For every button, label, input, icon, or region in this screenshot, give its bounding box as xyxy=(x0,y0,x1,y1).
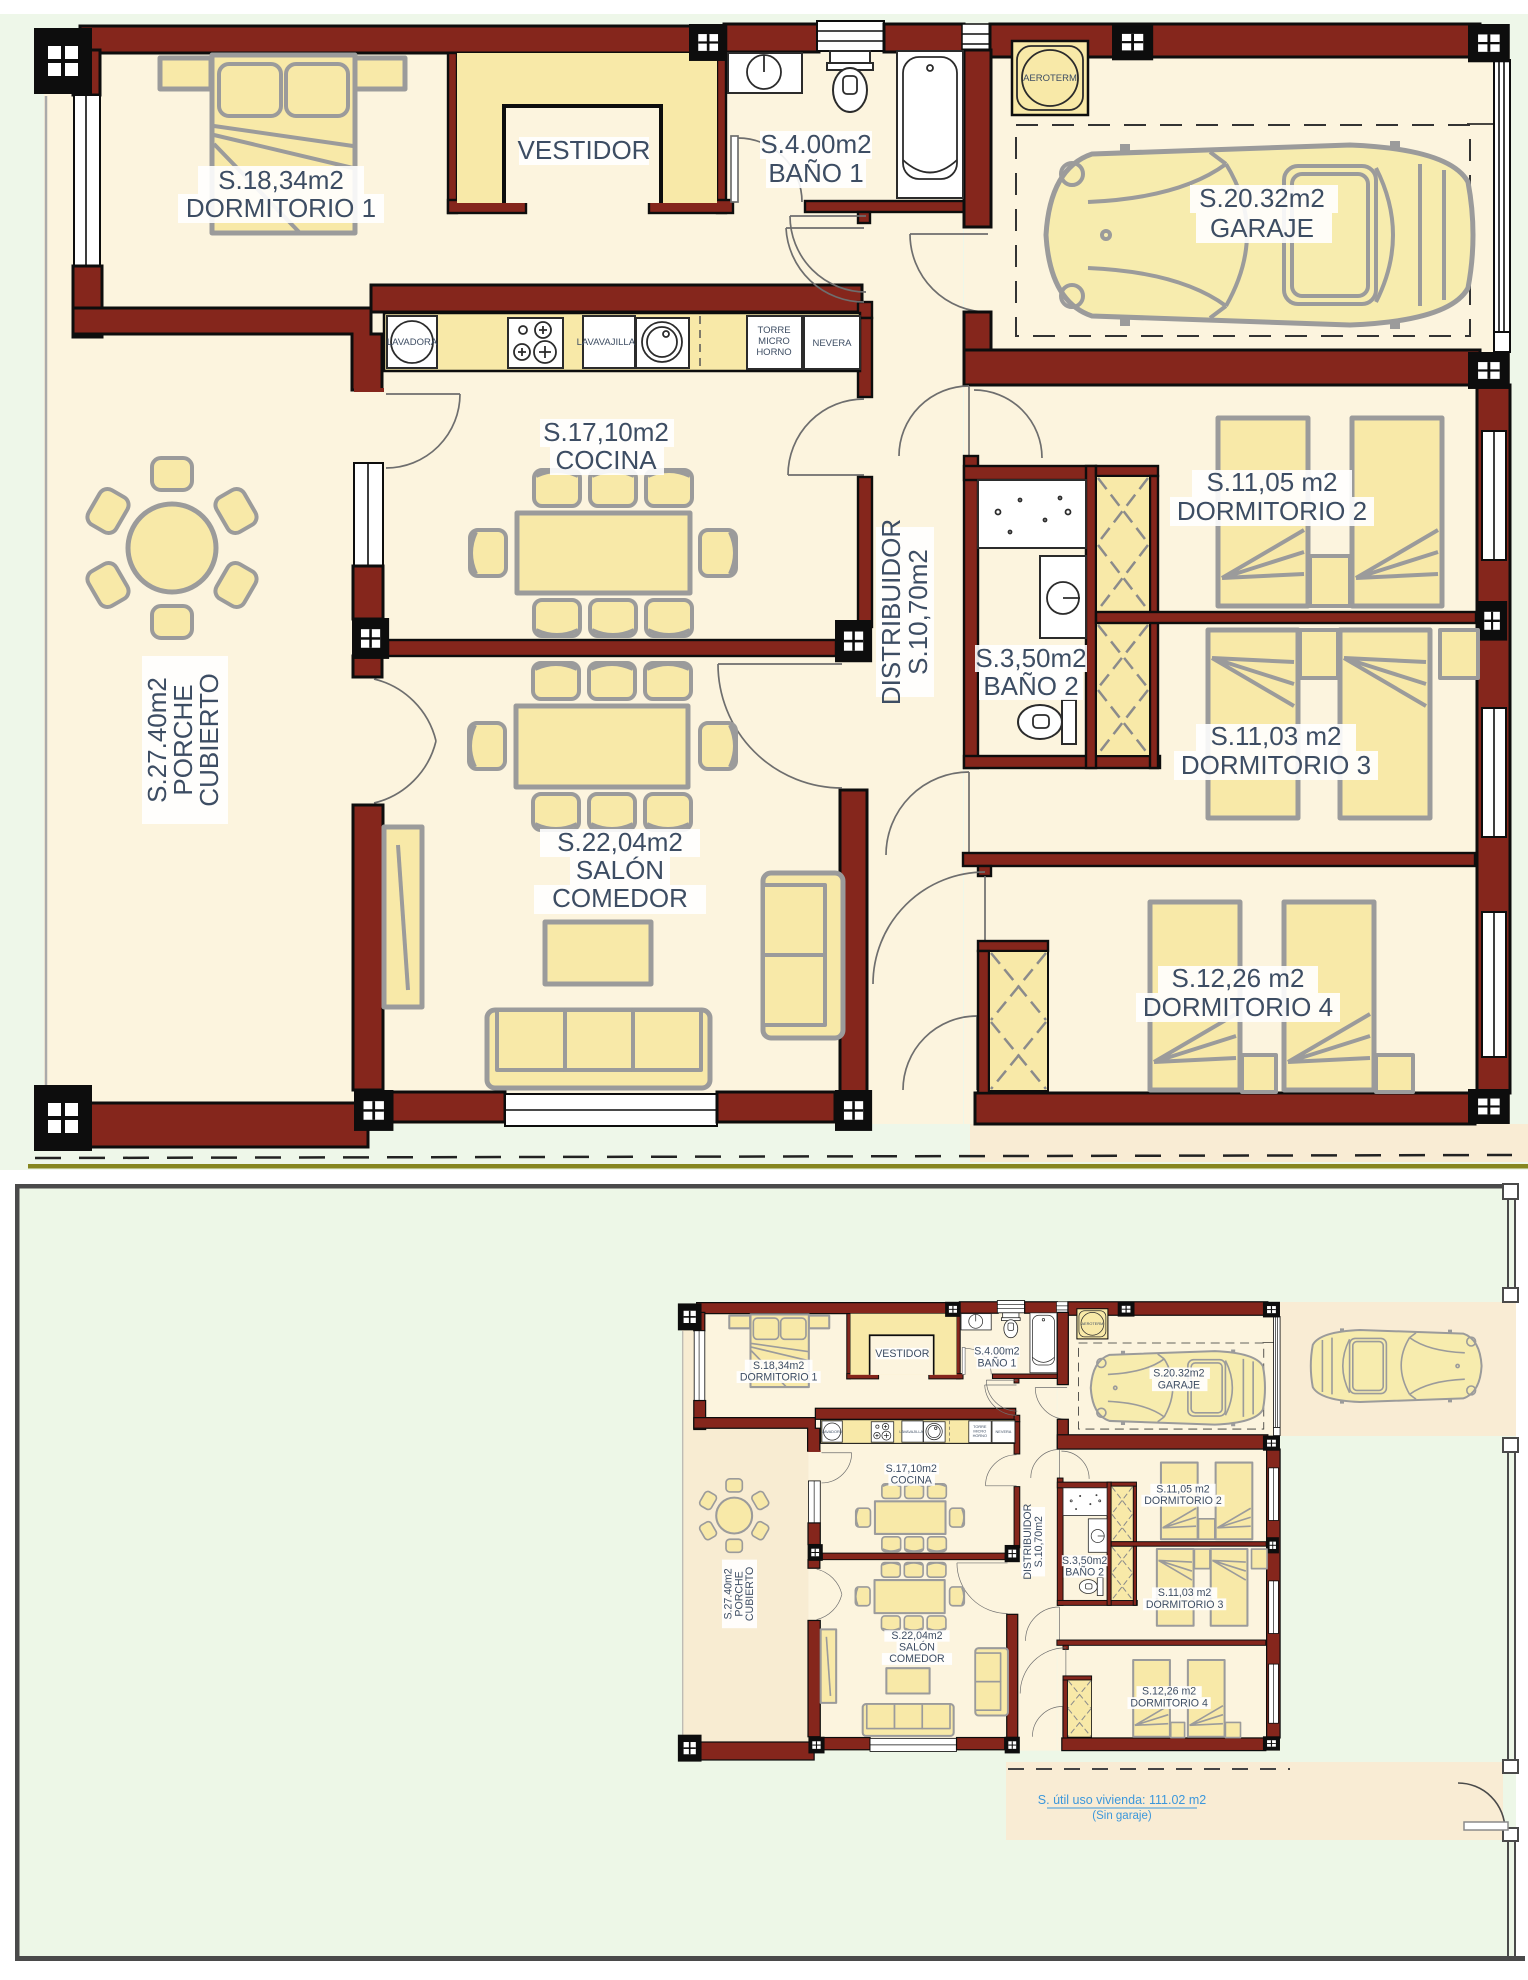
svg-text:(Sin garaje): (Sin garaje) xyxy=(1092,1810,1152,1822)
svg-text:S. útil uso vivienda: 111.02 m: S. útil uso vivienda: 111.02 m2 xyxy=(1038,1793,1206,1807)
